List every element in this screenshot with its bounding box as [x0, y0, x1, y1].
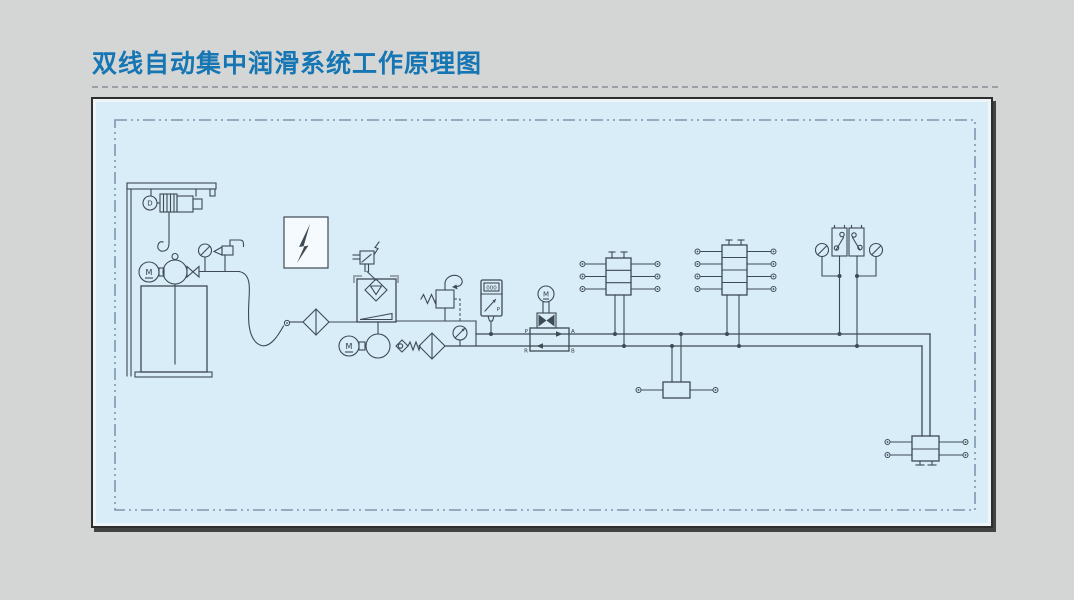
- lubrication-schematic: D M: [96, 102, 988, 523]
- title-separator-dashed-line: [92, 86, 998, 88]
- fill-pump-unit: M: [139, 254, 199, 285]
- flow-arrow-right: [556, 331, 563, 337]
- fill-valve-icon: [187, 267, 193, 278]
- end-gauge-left: [816, 244, 842, 279]
- distributor-bottom-middle: [636, 332, 718, 398]
- fill-line-filter-icon: [303, 309, 357, 335]
- contact-pressure-gauge: 000 P: [481, 280, 502, 336]
- port-a-label: A: [571, 329, 575, 335]
- pressure-switch-right: [849, 226, 864, 349]
- flow-arrow-left: [537, 343, 544, 349]
- fill-hose: [199, 272, 303, 346]
- contact-gauge-display: 000: [486, 286, 497, 292]
- reversing-valve: M P A R B: [524, 286, 575, 355]
- distributor-bottom-right: [885, 436, 968, 465]
- diagram-panel: D M: [91, 97, 993, 528]
- return-to-tank-arrow-icon: [445, 275, 462, 286]
- check-valve-icon: [396, 340, 420, 352]
- float-icon: [365, 279, 387, 301]
- distributor-4way: [695, 240, 776, 348]
- inner-dashed-border: [115, 120, 975, 510]
- line-filter-icon: [419, 333, 445, 359]
- pilot-line: [454, 299, 460, 321]
- hoist-motor-label: D: [147, 200, 152, 208]
- level-switch: [353, 242, 387, 301]
- relief-valve: [396, 275, 476, 321]
- page-title: 双线自动集中润滑系统工作原理图: [92, 44, 482, 80]
- grease-reservoir: [354, 276, 398, 322]
- port-b-label: B: [571, 349, 575, 355]
- station-pump-unit: M: [339, 322, 390, 358]
- pressure-switch-left: [832, 226, 847, 337]
- hook-icon: [158, 242, 169, 252]
- electric-actuation-arrow-icon: [375, 242, 380, 254]
- electric-hoist: D: [143, 194, 202, 251]
- valve-drive-icon: [539, 315, 547, 327]
- valve-motor-label: M: [543, 291, 549, 299]
- grease-gun-icon: [214, 240, 244, 272]
- outlet-ports: [580, 262, 660, 292]
- station-motor-label: M: [346, 342, 353, 351]
- fill-tank: [135, 284, 212, 377]
- fill-pressure-gauge: [199, 244, 212, 272]
- diagram-canvas: D M: [96, 102, 988, 523]
- station-pressure-gauge: [453, 326, 467, 346]
- port-r-label: R: [524, 349, 528, 355]
- electric-control-box: [284, 217, 328, 268]
- fill-pump-motor-label: M: [146, 268, 153, 277]
- contact-gauge-unit: P: [497, 307, 501, 313]
